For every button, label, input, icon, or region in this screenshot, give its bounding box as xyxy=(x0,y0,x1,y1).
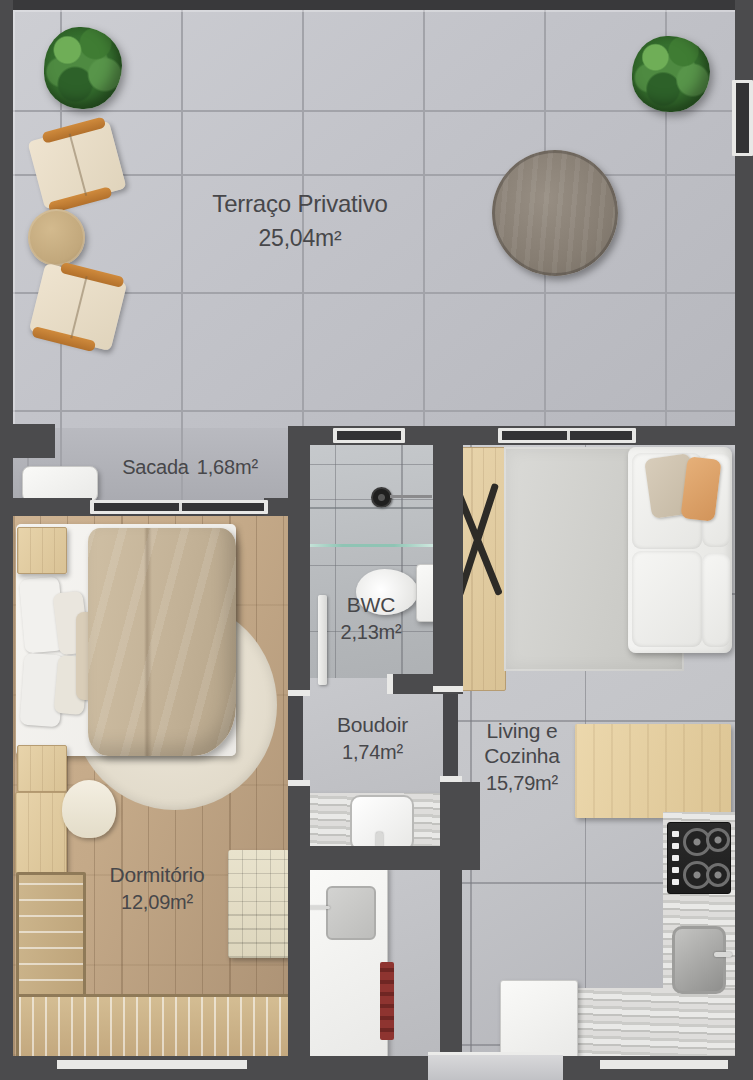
potted-plant-right xyxy=(632,36,710,112)
shower-tile-joint xyxy=(303,507,433,509)
wall-left xyxy=(0,0,13,1080)
terrace-right-window xyxy=(732,80,753,156)
glass-pane xyxy=(337,431,401,440)
stove-knob-icon xyxy=(672,831,679,837)
door-jamb xyxy=(288,690,310,696)
door-jamb xyxy=(387,674,393,694)
side-table xyxy=(28,209,85,266)
floor-plan: Terraço Privativo 25,04m² Sacada 1,68m² … xyxy=(0,0,753,1080)
stove-knob-icon xyxy=(672,879,679,885)
stove-burner-icon xyxy=(706,828,730,852)
room-area: 2,13m² xyxy=(315,621,427,644)
living-sliding-door xyxy=(498,428,636,443)
door-jamb xyxy=(288,780,310,786)
bottom-window-frame xyxy=(600,1060,728,1069)
sacada-sliding-door xyxy=(90,500,268,514)
room-area: 12,09m² xyxy=(72,891,242,914)
laundry-tub xyxy=(326,886,376,940)
wall-bwc-right xyxy=(433,426,463,692)
fridge xyxy=(500,980,578,1059)
sofa-back-cushion xyxy=(702,553,730,647)
stove-burner-icon xyxy=(706,863,730,887)
door-divider xyxy=(567,431,570,440)
shower-glass-partition xyxy=(303,544,433,547)
bed-duvet xyxy=(88,528,236,756)
room-label-boudoir: Boudoir 1,74m² xyxy=(310,712,435,764)
nightstand-bottom xyxy=(17,745,67,792)
shower-arm xyxy=(390,495,432,498)
bottom-window-frame xyxy=(57,1060,247,1069)
desk-chair xyxy=(62,780,116,838)
wall-boudoir-bottom xyxy=(288,846,480,870)
ac-unit xyxy=(22,466,98,502)
room-name: Boudoir xyxy=(310,712,435,737)
glass-pane xyxy=(736,83,749,153)
terrace-dining-table xyxy=(492,150,618,276)
desk xyxy=(15,792,67,874)
room-label-terraco: Terraço Privativo 25,04m² xyxy=(150,190,450,252)
bottom-door-sill xyxy=(428,1052,563,1080)
room-label-living: Living e Cozinha 15,79m² xyxy=(468,718,576,795)
stove-knob-icon xyxy=(672,867,679,873)
door-jamb xyxy=(433,686,463,692)
kitchen-faucet-icon xyxy=(714,952,732,957)
wardrobe-bottom xyxy=(16,994,296,1060)
stove xyxy=(667,822,731,894)
room-name: Living e Cozinha xyxy=(468,718,576,768)
gas-heater xyxy=(380,962,394,1040)
room-area: 15,79m² xyxy=(468,772,576,795)
bwc-window xyxy=(333,428,405,443)
room-name: Sacada xyxy=(122,456,189,479)
wall-bedroom-right-lower xyxy=(288,786,310,1056)
wall-bedroom-right-upper xyxy=(288,426,310,696)
room-label-dormitorio: Dormitório 12,09m² xyxy=(72,862,242,914)
kitchen-counter-bottom xyxy=(578,988,735,1058)
room-area: 25,04m² xyxy=(150,225,450,252)
room-name: BWC xyxy=(315,592,427,617)
room-name: Dormitório xyxy=(72,862,242,887)
wall-living-left-lower xyxy=(440,782,462,1056)
kitchen-dining-table xyxy=(575,724,731,818)
room-label-sacada: Sacada 1,68m² xyxy=(90,456,290,479)
stove-knob-icon xyxy=(672,855,679,861)
door-jamb xyxy=(440,776,462,782)
shower-head-icon xyxy=(371,487,392,508)
potted-plant-left xyxy=(44,27,122,109)
wall-right xyxy=(735,0,753,1080)
room-label-bwc: BWC 2,13m² xyxy=(315,592,427,644)
wall-top xyxy=(0,0,753,10)
kitchen-sink xyxy=(672,926,726,994)
wall-bedroom-top-left xyxy=(13,498,92,516)
room-name: Terraço Privativo xyxy=(150,190,450,219)
door-divider xyxy=(179,503,182,511)
lounge-chair-2 xyxy=(29,263,127,351)
stove-knob-icon xyxy=(672,843,679,849)
room-area: 1,74m² xyxy=(310,741,435,764)
wall-stub-sacada xyxy=(0,424,55,458)
sofa-seat-cushion xyxy=(632,551,702,647)
nightstand-top xyxy=(17,527,67,574)
room-area: 1,68m² xyxy=(197,456,258,479)
